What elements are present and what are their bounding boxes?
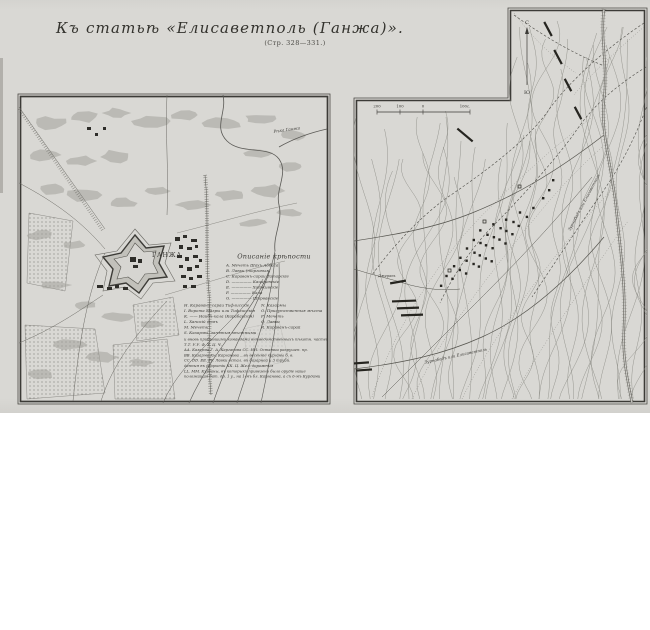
road-label: Зурнабадъ или Елисаветполь: [424, 346, 487, 364]
legend-item: G. ————— Ширванскіе: [226, 296, 326, 302]
scale-label: 100: [396, 104, 404, 109]
stream-label: Джерань: [377, 274, 396, 278]
right-map-border: [354, 8, 647, 404]
legend-items-right: N. Казармы О. Присутственныя мѣста Р. Ме…: [261, 303, 326, 336]
scale-bar: 200 100 0 100с.: [373, 104, 470, 115]
battle-map: С Ю 200 100 0 100с. Зурнабадъ или Елисав…: [352, 7, 649, 406]
legend-item: S. Казармы, занятыя мѣстными: [184, 330, 261, 336]
scale-label: 200: [373, 104, 381, 109]
scanned-page: Къ статьѣ «Елисаветполь (Ганжа)». (Стр. …: [0, 0, 650, 413]
legend-items-top: А. Мечеть Шахъ-Аббаса В. Лавки (торговыя…: [226, 263, 326, 302]
compass-north-label: С: [525, 20, 529, 26]
legend-items-left: Н. Караванъ-сараи Тифлисскіе I. Ворота М…: [184, 303, 261, 336]
legend-notes: и вновь прибывшими командами внѣведомств…: [184, 337, 327, 379]
city-label: ГАНЖА: [152, 252, 182, 259]
river: [603, 9, 632, 403]
city-plan-map: ГАНЖА Рѣка Ганжа Описаніе крѣпости А. Ме…: [17, 93, 331, 405]
scale-label: 100с.: [460, 104, 471, 109]
troop-bar-markers: [352, 21, 582, 371]
page-subtitle: (Стр. 328—331.): [235, 39, 355, 47]
compass-icon: С Ю: [524, 20, 530, 96]
scan-edge-shadow: [0, 58, 3, 193]
legend-item: R. Караванъ-сарай: [261, 325, 326, 331]
compass-south-label: Ю: [524, 90, 530, 96]
battle-map-canvas: С Ю 200 100 0 100с. Зурнабадъ или Елисав…: [352, 7, 649, 406]
scale-label: 0: [422, 104, 425, 109]
legend-note: положащая бат. др. 1 у., на 1-мъ бл. Кар…: [184, 374, 327, 379]
legend: Описаніе крѣпости А. Мечеть Шахъ-Аббаса …: [180, 253, 328, 403]
legend-heading: Описаніе крѣпости: [221, 253, 327, 261]
